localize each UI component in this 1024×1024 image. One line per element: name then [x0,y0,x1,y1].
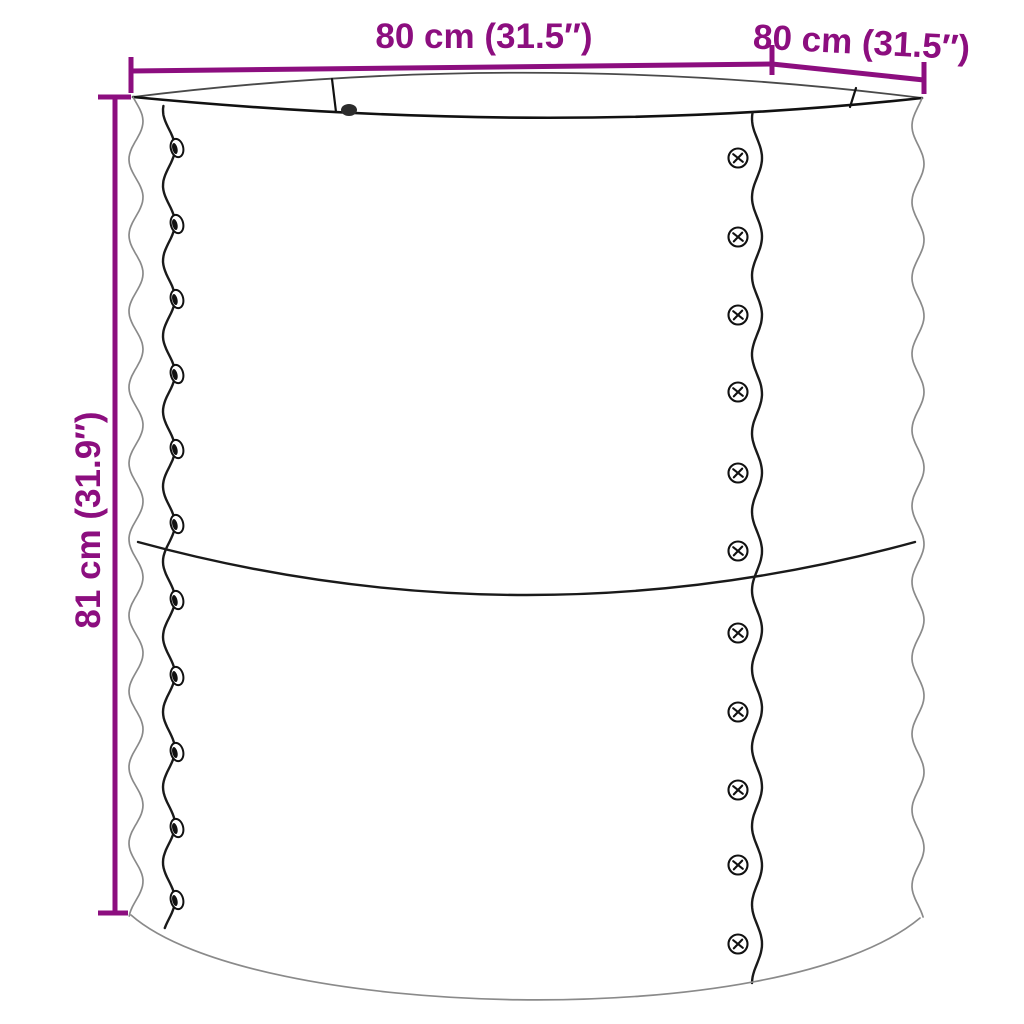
screw-front-icon [729,856,748,875]
width-dimension-label: 80 cm (31.5″) [375,17,592,56]
screw-front-icon [729,781,748,800]
screw-front-icon [729,228,748,247]
screw-front-icon [729,149,748,168]
product-dimension-diagram: 80 cm (31.5″) 80 cm (31.5″) 81 cm (31.9″… [0,0,1024,1024]
screw-front-icon [729,703,748,722]
diagram-svg: 80 cm (31.5″) 80 cm (31.5″) 81 cm (31.9″… [0,0,1024,1024]
screw-front-icon [729,306,748,325]
background [0,0,1024,1024]
screw-front-icon [729,383,748,402]
screw-front-icon [729,464,748,483]
screw-front-icon [729,624,748,643]
screw-front-icon [729,542,748,561]
rim-rivet-bump-icon [341,104,357,116]
height-dimension-label: 81 cm (31.9″) [69,411,108,628]
screw-front-icon [729,935,748,954]
